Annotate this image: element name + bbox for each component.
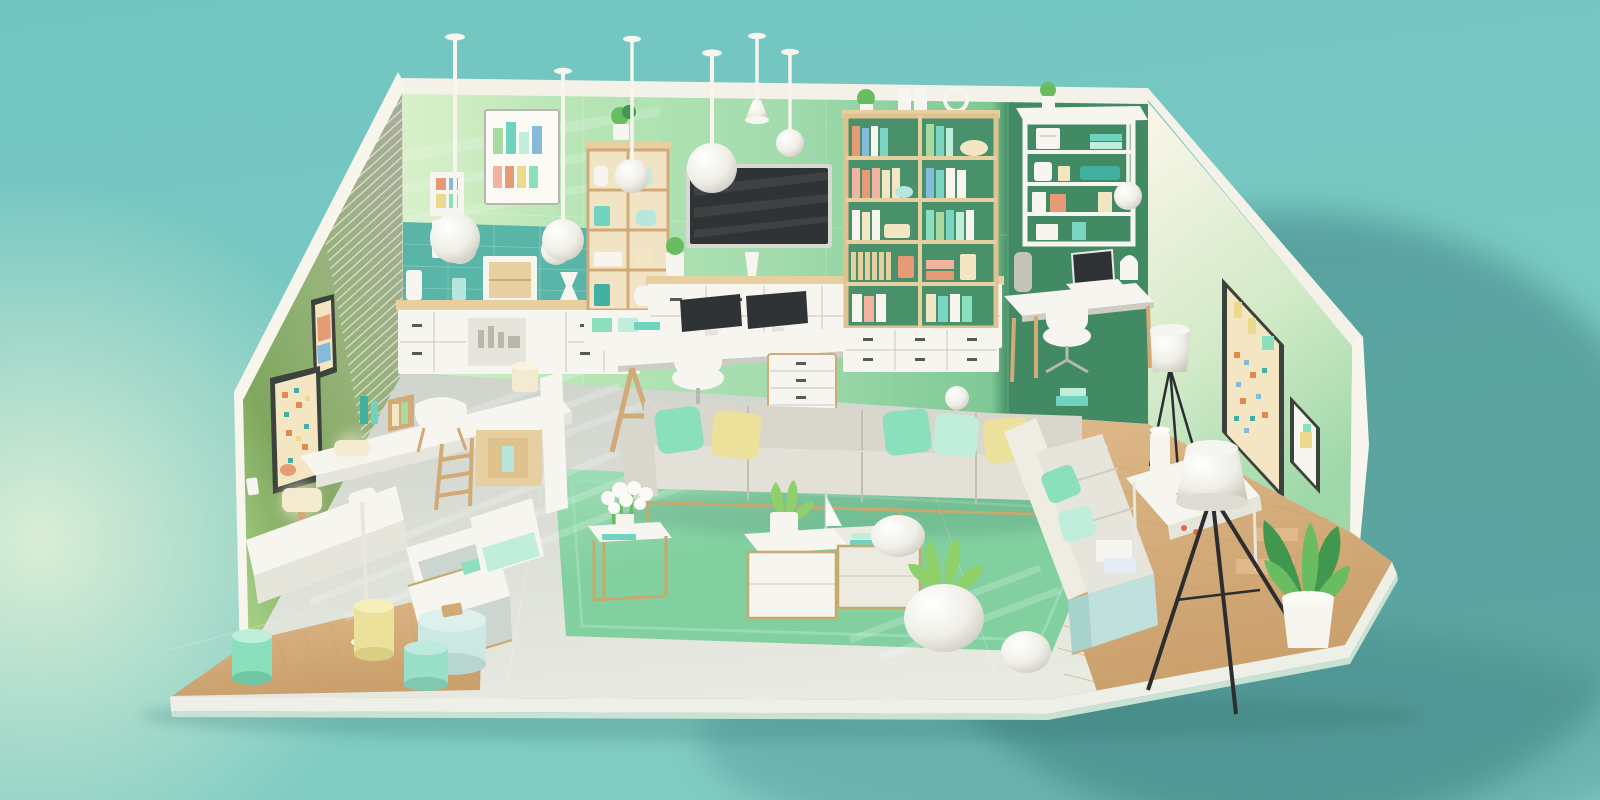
desk-teal-books (634, 322, 660, 330)
wood-console (476, 420, 542, 486)
candle-pillar (512, 362, 538, 393)
console-bottle (371, 401, 378, 424)
desk-speaker (1014, 252, 1032, 292)
stool-mint (232, 629, 272, 685)
white-pouf (871, 515, 925, 557)
glass-cup (452, 278, 466, 300)
sofa-teal-books (1056, 396, 1088, 406)
isometric-room-illustration (0, 0, 1600, 800)
stool-mint-small (404, 641, 448, 691)
console-bottle (360, 396, 368, 424)
stool-yellow (354, 599, 394, 661)
chart-poster (485, 110, 559, 204)
wall-shelf-plant (1040, 82, 1056, 108)
small-white-pouf (1001, 631, 1051, 673)
bookshelf-drawers (843, 328, 999, 372)
light-switch (246, 477, 259, 495)
desk-kettle (1120, 255, 1138, 280)
left-wall-poster-small (311, 294, 337, 380)
large-bookshelf (842, 88, 1000, 372)
sideboard-appliance (406, 270, 422, 300)
